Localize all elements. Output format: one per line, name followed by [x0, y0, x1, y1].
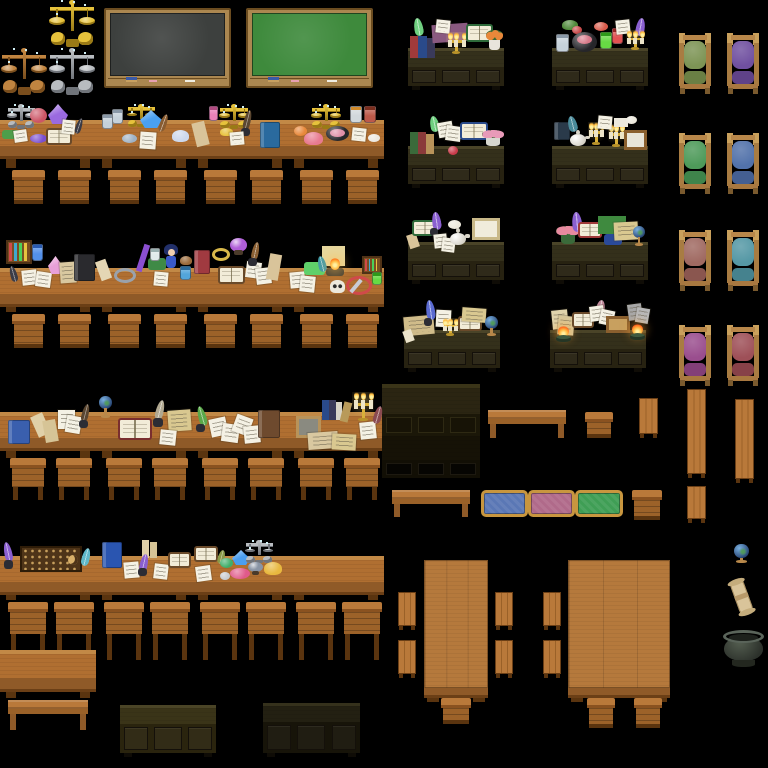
bench-planks [495, 592, 513, 626]
rack-tube-0 [9, 243, 12, 261]
sparkle-1 [73, 1, 75, 3]
stool-base [156, 344, 185, 348]
stool-leg [59, 487, 64, 500]
stool-2 [106, 458, 142, 500]
stool-top [634, 698, 662, 705]
desk-row2-3 [192, 104, 288, 168]
candle-1 [361, 400, 365, 409]
powder-pile [172, 130, 189, 142]
bench-top-view-a [398, 592, 416, 630]
balance-scale-bronze [0, 48, 48, 96]
green-flask-lid [373, 273, 381, 276]
drawer-2 [472, 352, 496, 365]
black-table-panel-0 [386, 417, 412, 433]
chair-top-bar [731, 135, 755, 140]
stool-3 [154, 314, 187, 348]
chair-rail [706, 335, 711, 378]
bench-edge [392, 499, 470, 504]
stool-top [248, 458, 284, 465]
red-book [194, 250, 210, 274]
drawer-1 [442, 168, 470, 181]
chair-top-bar [731, 327, 755, 332]
drawer-2 [476, 168, 500, 181]
stool [441, 698, 471, 724]
blue-book-flat [8, 420, 30, 444]
stool-leg [155, 487, 160, 500]
stool-top [296, 602, 336, 609]
scale-pouch-left [312, 121, 322, 128]
scale-pouch-left [3, 80, 17, 93]
cauldron-contents [577, 35, 592, 44]
bench-top-view-long-2 [735, 399, 754, 483]
desk-foot [102, 159, 112, 168]
black-table-lower-panel-1 [418, 463, 444, 475]
drawer-0 [412, 70, 436, 83]
pink-mushrooms [304, 132, 323, 145]
bench-foot [688, 519, 692, 523]
chair-cushion-back [732, 238, 754, 266]
chair-cushion-back [684, 41, 706, 69]
glass-jar-2 [112, 109, 123, 124]
stool-1 [56, 458, 92, 500]
sparkle-1 [327, 105, 329, 107]
chalk-pink [291, 80, 299, 82]
scale-pouch-left [128, 120, 137, 127]
bench-foot [688, 474, 692, 478]
desk-foot [634, 368, 642, 372]
scale-pan-left [311, 113, 322, 117]
desk-front [288, 146, 384, 159]
stool-front [302, 324, 331, 344]
desk-foot [636, 86, 644, 90]
sparkle-1 [22, 105, 24, 107]
desk-foot [124, 753, 132, 757]
scale-pillar [258, 542, 261, 555]
stool-leg [203, 634, 208, 660]
scale-pouch-right [78, 80, 93, 93]
stool-5 [248, 458, 284, 500]
scale-base [66, 87, 78, 94]
desk-foot [294, 595, 304, 600]
small-globe-sphere [734, 544, 748, 558]
mortar-base [732, 660, 755, 667]
stool-front [60, 180, 89, 200]
stool-base [110, 200, 139, 204]
black-table-top [382, 388, 480, 414]
red-jar [364, 106, 376, 123]
stool-top [300, 170, 333, 177]
drawer-1 [586, 70, 614, 83]
mask-box [624, 130, 647, 150]
black-table-top-2 [382, 436, 480, 460]
stool-top [585, 412, 613, 419]
stool-front [108, 468, 140, 487]
stool-front [106, 612, 142, 634]
flower-pot [486, 30, 503, 50]
rolled-scroll [721, 574, 763, 622]
candle-1 [614, 132, 618, 139]
chair-leg [728, 188, 733, 194]
sparkle-0 [227, 104, 229, 106]
writing-desk-f [552, 212, 648, 284]
blue-book-upright [418, 36, 427, 58]
desk-foot [554, 368, 562, 372]
stool [634, 698, 662, 728]
desk-row6-3 [192, 540, 288, 600]
desk-foot [412, 184, 420, 188]
green-feather [413, 17, 425, 36]
stool-leg [109, 487, 114, 500]
bench-planks [735, 399, 754, 479]
stone-mortar [720, 626, 767, 668]
desk-row3-4 [288, 232, 384, 312]
rack-tube-0 [365, 259, 367, 271]
chair-leg [753, 285, 758, 291]
chair-rail [754, 43, 759, 86]
desk-foot [80, 159, 90, 168]
drawer-0 [412, 264, 436, 277]
desk-top [263, 706, 360, 722]
drawer-1 [297, 725, 325, 750]
writing-desk-h [550, 300, 646, 372]
amber-jar-lid [351, 107, 361, 110]
stool-leg [205, 487, 210, 500]
chair-leg [753, 88, 758, 94]
eraser [268, 77, 279, 82]
candelabra-base [631, 47, 639, 50]
sparkle-2 [148, 106, 150, 108]
stool-front [248, 612, 284, 634]
sparkle-0 [319, 104, 321, 106]
stool-base [348, 344, 377, 348]
candle-2 [600, 130, 604, 137]
stool-front [252, 324, 281, 344]
stool-leg [278, 634, 283, 660]
papers [153, 563, 169, 580]
stool-top [246, 602, 286, 609]
bench-planks [495, 640, 513, 674]
desk-top [408, 245, 504, 261]
table-foot [473, 698, 485, 702]
globe-base [635, 243, 643, 246]
scale-pan-right [330, 113, 341, 117]
stool-top [298, 458, 334, 465]
bench-top-view-e [543, 592, 561, 630]
paper-note [13, 129, 28, 143]
chair-top-bar [683, 232, 707, 237]
blue-flask-lid [33, 245, 42, 248]
rope-coil [114, 268, 136, 283]
stool-top [587, 698, 615, 705]
stool-front [300, 468, 332, 487]
candle-flame-0 [448, 32, 453, 40]
chalkboard-dark [104, 8, 231, 88]
stool-front [14, 180, 43, 200]
stone-mortar [720, 626, 767, 668]
stool-5 [250, 314, 283, 348]
brown-mushrooms [180, 256, 192, 265]
stool-7 [342, 602, 382, 660]
green-flask-lid [601, 33, 611, 36]
bench-foot [411, 674, 415, 678]
chair-cushion-seat [684, 71, 706, 84]
desk-front [96, 294, 192, 307]
stool-top [8, 602, 48, 609]
stool-top [152, 458, 188, 465]
bench-leg [80, 714, 86, 730]
chair-cushion-seat [732, 71, 754, 84]
candle-flame-1 [454, 32, 459, 40]
chair-top-mauve [679, 230, 711, 291]
drawer-0 [408, 352, 432, 365]
chair-leg [728, 285, 733, 291]
stool-4 [200, 602, 240, 660]
glass-jar-2-lid [113, 110, 122, 113]
scale-pillar [325, 106, 328, 121]
bowl-contents [330, 129, 345, 137]
green-flask [600, 32, 612, 49]
drawer-2 [188, 727, 212, 750]
scale-pouch-left [51, 32, 65, 45]
desk-foot [272, 307, 282, 312]
sparkle-3 [56, 61, 58, 63]
black-table [382, 384, 480, 482]
desk-front [288, 582, 384, 595]
scale-pillar [71, 52, 74, 79]
papers [153, 271, 168, 286]
bench-leg [490, 424, 496, 438]
stool-top [204, 314, 237, 321]
candle-flame-0 [354, 392, 359, 400]
globe-sphere [99, 396, 112, 409]
inkwell [4, 560, 13, 569]
scale-pan-right [79, 65, 95, 73]
tan-book-upright [426, 134, 434, 154]
writing-desk-c [408, 116, 504, 188]
bench-top [8, 700, 88, 709]
chair-rail [706, 240, 711, 283]
chair-leg [680, 88, 685, 94]
rack-tube-1 [14, 243, 17, 261]
bench-foot [640, 434, 644, 438]
doll-figure [164, 244, 178, 268]
desk-top [120, 708, 216, 724]
black-table-lower-panel-2 [450, 463, 476, 475]
stool-leg [84, 487, 89, 500]
chair-top-bar [683, 327, 707, 332]
blue-book-upright [102, 542, 122, 568]
candelabra-base [592, 142, 599, 145]
stool-2 [104, 602, 144, 660]
flower-pot [486, 138, 499, 146]
bowl-base [556, 335, 571, 342]
stool-top [300, 314, 333, 321]
sparkle-3 [131, 111, 133, 113]
desk-foot [198, 451, 208, 458]
stool-front [58, 468, 90, 487]
bench-top-view-long [687, 389, 706, 478]
bowl-base [630, 333, 645, 340]
rack-tube-2 [372, 259, 374, 271]
stool-front [348, 324, 377, 344]
bench-leg [10, 714, 16, 730]
bench-foot [653, 434, 657, 438]
certificate-folder [472, 218, 500, 240]
drawer-2 [332, 725, 356, 750]
chair-leg [753, 188, 758, 194]
pink-potion [209, 106, 218, 121]
candle-flame-1 [633, 30, 638, 38]
sparkle-2 [266, 542, 268, 544]
stool-row-3 [0, 314, 768, 348]
scale-pouch-right [78, 32, 93, 45]
stool-top [56, 458, 92, 465]
sparkle-1 [73, 49, 75, 51]
bench-planks [543, 640, 561, 674]
drawer-0 [556, 70, 580, 83]
desk-top [288, 560, 384, 582]
stool-front [202, 612, 238, 634]
pink-potion-lid [210, 107, 217, 110]
stool-leg [347, 487, 352, 500]
papers [61, 119, 75, 134]
sparkle-1 [25, 49, 27, 51]
drawer-0 [556, 264, 580, 277]
desk-foot [6, 307, 16, 312]
stool-base [252, 200, 281, 204]
sparkle-0 [134, 104, 136, 106]
chair-leg [728, 380, 733, 386]
stool-base [348, 200, 377, 204]
balance-scale-gold [48, 0, 96, 48]
candle-0 [448, 40, 452, 47]
stool-front [348, 180, 377, 200]
desk-front [192, 294, 288, 307]
chair-cushion-back [684, 333, 706, 361]
large-table-wide [568, 560, 670, 702]
stool [587, 698, 615, 728]
stool-base [206, 200, 235, 204]
sparkle-2 [36, 52, 38, 54]
desk-top [552, 245, 648, 261]
book-upright-navy [329, 400, 336, 420]
stool-front [589, 708, 613, 724]
candle-2 [369, 400, 373, 409]
black-grimoire [74, 254, 95, 281]
teapot-spout [465, 234, 470, 238]
bench-top-view-d [495, 640, 513, 678]
desk-foot [556, 280, 564, 284]
chair-rail [754, 335, 759, 378]
purple-dish [30, 134, 47, 143]
desk-foot [294, 307, 304, 312]
parchment-sheet [139, 131, 156, 149]
chair-rail [754, 240, 759, 283]
desk-foot [294, 451, 304, 458]
desk-foot [80, 307, 90, 312]
chair-leg [705, 285, 710, 291]
stool-front [206, 180, 235, 200]
stool-top [104, 602, 144, 609]
scroll-standing-2 [150, 542, 157, 558]
teapot-body [450, 233, 466, 246]
stool-4 [202, 458, 238, 500]
drawer-0 [267, 725, 291, 750]
chair-top-bar [683, 135, 707, 140]
scale-base [18, 87, 30, 94]
sparkle-0 [252, 540, 254, 542]
scale-pouch-left [8, 121, 17, 128]
desk-front [96, 582, 192, 595]
scale-pan-left [7, 113, 17, 117]
stool-3 [150, 602, 190, 660]
desk-top [552, 51, 648, 67]
desk-foot [368, 451, 378, 458]
chair-leg [705, 188, 710, 194]
stool-base [587, 434, 611, 438]
desk-foot [272, 595, 282, 600]
desk-front [288, 294, 384, 307]
stool-top [10, 458, 46, 465]
chair-cushion-seat [684, 363, 706, 376]
bench-foot [556, 674, 560, 678]
stool-base [156, 200, 185, 204]
balance-scale-silver [48, 48, 96, 96]
candelabra [442, 318, 458, 336]
desk-foot [80, 595, 90, 600]
candle-flame-2 [640, 30, 645, 38]
cushion-blue [481, 490, 528, 517]
bench-planks [398, 640, 416, 674]
crystal-ball [230, 238, 247, 255]
stool-base [302, 200, 331, 204]
desk-row2-1 [0, 104, 96, 168]
bench-foot [736, 479, 740, 483]
stool-base [634, 516, 660, 520]
bench-edge [488, 419, 566, 424]
candle-flame-2 [369, 392, 374, 400]
stool-front [636, 708, 660, 724]
stool-3 [154, 170, 187, 204]
rack-tube-3 [376, 259, 378, 271]
bench-leg [558, 424, 564, 438]
chair-top-red [727, 325, 759, 386]
doll-dress [166, 256, 177, 268]
drawer-2 [620, 264, 644, 277]
chair-top-magenta [679, 325, 711, 386]
candelabra-base [452, 51, 461, 54]
stool-front [250, 468, 282, 487]
stool-front [10, 612, 46, 634]
stool-top [250, 170, 283, 177]
stool-front [443, 708, 469, 720]
inkwell [248, 258, 257, 266]
candle-2 [462, 40, 466, 47]
desk-foot [198, 159, 208, 168]
paper-note [351, 127, 366, 141]
stool-6 [298, 458, 334, 500]
chair-leg [753, 380, 758, 386]
small-bench-2 [632, 490, 662, 520]
blue-book [260, 122, 280, 148]
globe-base [487, 333, 496, 336]
old-map [332, 433, 357, 450]
desk-row6-4-empty [288, 540, 384, 600]
chair-cushion-back [732, 41, 754, 69]
carved-relief-panel [20, 546, 82, 572]
writing-desk-b [552, 18, 648, 90]
green-gem [220, 558, 233, 568]
